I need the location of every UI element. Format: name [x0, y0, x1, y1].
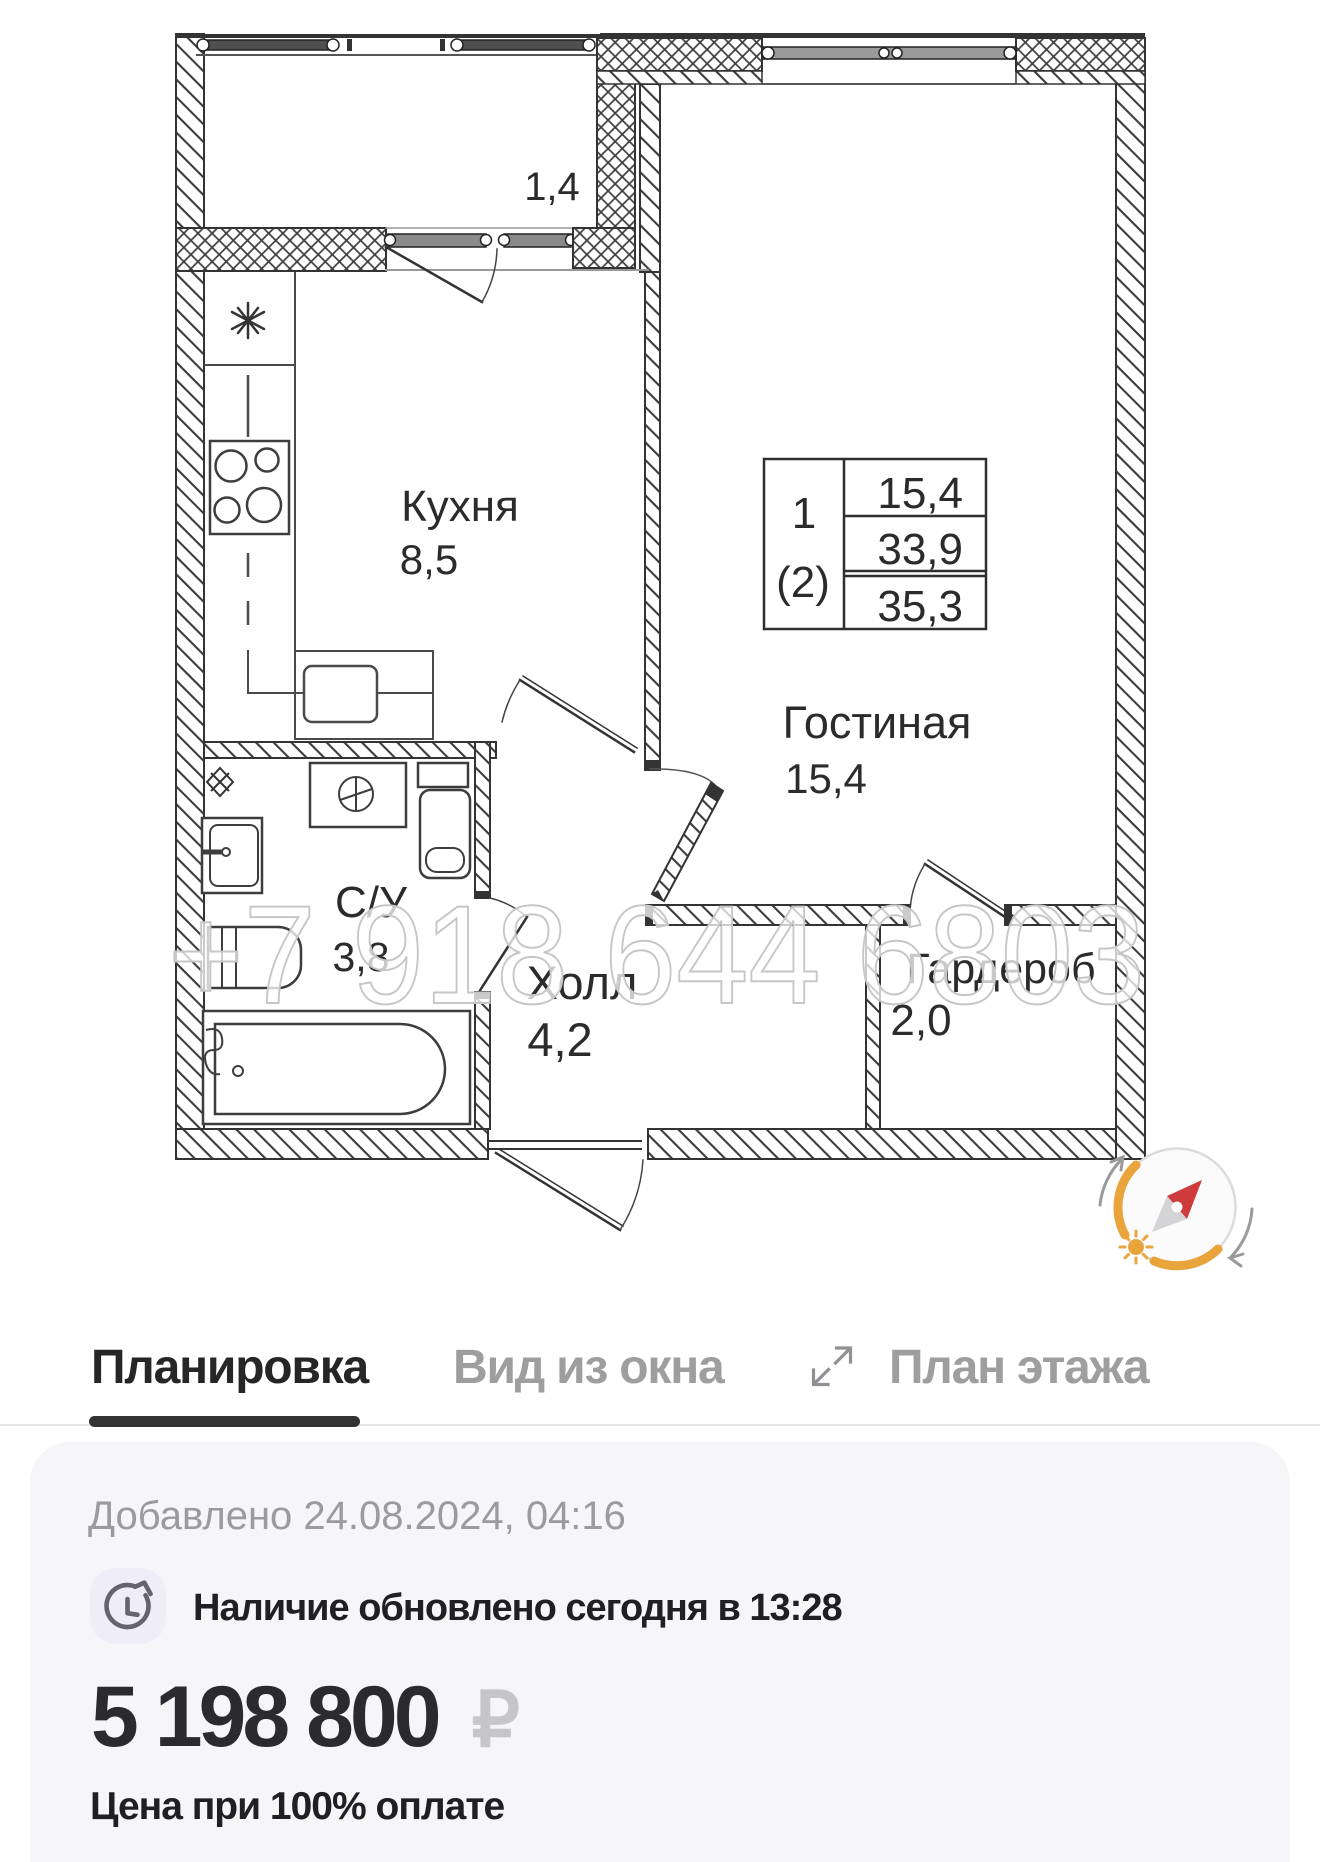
- svg-text:15,4: 15,4: [877, 469, 963, 518]
- svg-text:15,4: 15,4: [785, 755, 867, 802]
- svg-text:Кухня: Кухня: [401, 482, 519, 531]
- svg-text:1: 1: [792, 489, 816, 538]
- svg-text:+7 918 644 6803: +7 918 644 6803: [168, 876, 1145, 1033]
- svg-text:1,4: 1,4: [524, 165, 580, 209]
- svg-text:35,3: 35,3: [877, 582, 963, 631]
- svg-text:Гостиная: Гостиная: [783, 697, 972, 748]
- svg-text:(2): (2): [776, 558, 830, 607]
- svg-text:8,5: 8,5: [400, 536, 458, 583]
- svg-text:33,9: 33,9: [877, 525, 963, 574]
